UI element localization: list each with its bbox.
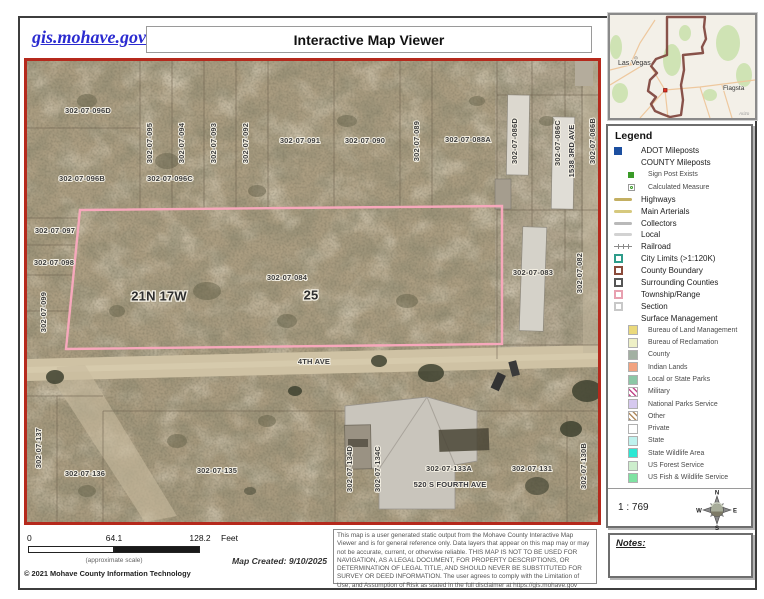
legend-swatch-wrap — [614, 266, 635, 275]
legend-swatch-wrap — [628, 424, 644, 434]
parcel-label: 302-07-097 — [35, 226, 75, 235]
legend-swatch-wrap — [628, 473, 644, 483]
dark-canopy — [439, 428, 490, 452]
parcel-label: 302-07-093 — [209, 123, 218, 163]
scalebar-segment-white — [28, 546, 114, 553]
legend-item: County Boundary — [608, 265, 751, 277]
legend-item: ADOT Mileposts — [608, 145, 751, 157]
legend-item: Local — [608, 229, 751, 241]
legend-fill-swatch — [628, 436, 638, 446]
site-link[interactable]: gis.mohave.gov — [32, 27, 146, 48]
scalebar-unit: Feet — [221, 533, 238, 543]
legend-label: City Limits (>1:120K) — [641, 254, 715, 263]
legend-swatch-wrap — [614, 210, 635, 213]
parcel-label: 302-07-092 — [241, 123, 250, 163]
legend-fill-swatch — [628, 461, 638, 471]
trailer-roof — [519, 227, 547, 332]
legend-outline-swatch — [614, 302, 623, 311]
inset-map: Las Vegas Flagsta Arizo — [608, 13, 757, 120]
page-title: Interactive Map Viewer — [294, 32, 445, 48]
legend-item: COUNTY Mileposts — [608, 157, 751, 169]
legend-item: County — [608, 349, 751, 361]
legend-line-swatch — [614, 222, 632, 225]
legend-swatch-wrap — [614, 244, 635, 249]
legend-fill-swatch — [628, 375, 638, 385]
legend-swatch-wrap — [628, 350, 644, 360]
parcel-label: 302-07-099 — [39, 292, 48, 332]
legend-label: Collectors — [641, 219, 677, 228]
scalebar-tick-mid: 64.1 — [106, 533, 123, 543]
copyright: © 2021 Mohave County Information Technol… — [24, 569, 191, 578]
legend-item: US Fish & Wildlife Service — [608, 472, 751, 484]
legend-item: Bureau of Land Management — [608, 324, 751, 336]
legend-swatch-wrap — [614, 290, 635, 299]
legend-item: Township/Range — [608, 289, 751, 301]
legend-scale-row: 1 : 769 N — [608, 489, 751, 531]
legend-label: Bureau of Land Management — [648, 327, 737, 334]
legend-label: Highways — [641, 195, 676, 204]
scalebar-tick-end: 128.2 — [189, 533, 210, 543]
legend-label: National Parks Service — [648, 401, 718, 408]
legend-item: Other — [608, 410, 751, 422]
legend-item: Indian Lands — [608, 361, 751, 373]
legend-label: Section — [641, 302, 668, 311]
legend-label: Calculated Measure — [648, 184, 709, 191]
scalebar-segment-black — [114, 546, 200, 553]
township-section-label: 21N 17W — [131, 288, 187, 303]
map-canvas: 302-07-096D302-07-096B302-07-096C302-07-… — [24, 58, 601, 525]
legend-label: State Wildlife Area — [648, 450, 704, 457]
legend-item: Highways — [608, 193, 751, 205]
legend-outline-swatch — [614, 290, 623, 299]
compass-star — [703, 496, 731, 524]
legend-item: National Parks Service — [608, 398, 751, 410]
parcel-label: 302-07-089 — [412, 121, 421, 161]
legend-title: Legend — [615, 130, 751, 142]
legend-swatch-wrap — [614, 254, 635, 263]
parcel-label: 302-07-088A — [445, 135, 491, 144]
legend-label: US Forest Service — [648, 462, 704, 469]
legend-label: Local — [641, 230, 660, 239]
parcel-label: 302-07-134C — [373, 446, 382, 492]
legend-items: ADOT MilepostsCOUNTY MilepostsSign Post … — [608, 145, 751, 484]
parcel-label: 302-07-096C — [147, 174, 193, 183]
legend: Legend ADOT MilepostsCOUNTY MilepostsSig… — [606, 124, 753, 528]
legend-label: US Fish & Wildlife Service — [648, 474, 728, 481]
legend-line-swatch — [614, 198, 632, 201]
legend-label: ADOT Mileposts — [641, 146, 699, 155]
legend-label: County Boundary — [641, 266, 703, 275]
parcel-label: 302-07-083 — [513, 268, 553, 277]
trailer-shadow — [348, 439, 368, 447]
location-marker — [664, 89, 668, 93]
legend-square-small-swatch — [628, 172, 634, 178]
legend-hatch-swatch — [628, 411, 638, 421]
legend-item: US Forest Service — [608, 459, 751, 471]
compass-rose: N S W E — [695, 489, 739, 531]
legend-rail-swatch — [614, 244, 632, 249]
legend-item: Bureau of Reclamation — [608, 336, 751, 348]
legend-item: Surrounding Counties — [608, 277, 751, 289]
legend-item: Local or State Parks — [608, 373, 751, 385]
parcel-label: 302-07-086B — [588, 118, 597, 164]
legend-item: State — [608, 435, 751, 447]
legend-swatch-wrap — [614, 278, 635, 287]
legend-item: Railroad — [608, 241, 751, 253]
legend-swatch-wrap — [614, 302, 635, 311]
parcel-label: 302-07-096B — [59, 174, 105, 183]
parcel-label: 302-07-135 — [197, 466, 237, 475]
legend-label: State — [648, 437, 664, 444]
legend-fill-swatch — [628, 473, 638, 483]
legend-swatch-wrap — [628, 375, 644, 385]
legend-item: Calculated Measure — [608, 181, 751, 193]
parcel-label: 302-07-133A — [426, 464, 472, 473]
legend-item: State Wildlife Area — [608, 447, 751, 459]
map-viewer-page: gis.mohave.gov Interactive Map Viewer — [0, 0, 764, 599]
legend-swatch-wrap — [628, 172, 644, 178]
scalebar-approx-note: (approximate scale) — [85, 557, 142, 564]
legend-outline-swatch — [614, 278, 623, 287]
parcel-label: 302-07-098 — [34, 258, 74, 267]
parcel-label: 302-07-086C — [553, 120, 562, 166]
compass-west-label: W — [696, 509, 702, 515]
legend-fill-swatch — [628, 448, 638, 458]
legend-line-swatch — [614, 233, 632, 236]
legend-swatch-wrap — [614, 198, 635, 201]
parcel-label: 302-07-134D — [345, 446, 354, 492]
parcel-label: 302-07-082 — [575, 253, 584, 293]
legend-item: Surface Management — [608, 312, 751, 324]
legend-swatch-wrap — [628, 387, 644, 397]
legend-square-swatch — [614, 147, 622, 155]
legend-label: Indian Lands — [648, 364, 687, 371]
legend-fill-swatch — [628, 325, 638, 335]
third-ave-road — [583, 61, 598, 353]
parcel-label: 4TH AVE — [298, 357, 330, 366]
parcel-label: 302-07-091 — [280, 136, 320, 145]
legend-item: Military — [608, 386, 751, 398]
parcel-label: 302-07-130B — [579, 443, 588, 489]
legend-item: Private — [608, 423, 751, 435]
shed-roof — [495, 179, 511, 209]
legend-outline-swatch — [614, 266, 623, 275]
legend-swatch-wrap — [614, 233, 635, 236]
notes-label: Notes: — [616, 538, 751, 549]
legend-swatch-wrap — [628, 338, 644, 348]
legend-fill-swatch — [628, 399, 638, 409]
legend-dot-box-swatch — [628, 184, 635, 191]
parcel-label: 302-07-086D — [510, 118, 519, 164]
legend-item: Main Arterials — [608, 205, 751, 217]
legend-swatch-wrap — [628, 461, 644, 471]
legend-label: Surface Management — [641, 314, 718, 323]
legend-outline-swatch — [614, 254, 623, 263]
legend-swatch-wrap — [628, 184, 644, 191]
parcel-label: 302-07-084 — [267, 273, 308, 282]
parcel-label: 302-07-094 — [177, 122, 186, 163]
legend-swatch-wrap — [628, 448, 644, 458]
legend-swatch-wrap — [614, 222, 635, 225]
legend-swatch-wrap — [628, 411, 644, 421]
legend-fill-swatch — [628, 424, 638, 434]
inset-city-label: Las Vegas — [618, 60, 651, 67]
legend-item: Collectors — [608, 217, 751, 229]
legend-fill-swatch — [628, 338, 638, 348]
aerial-map: 302-07-096D302-07-096B302-07-096C302-07-… — [27, 61, 598, 522]
legend-label: Other — [648, 413, 665, 420]
parcel-label: 302-07-131 — [512, 464, 552, 473]
legend-label: Local or State Parks — [648, 376, 710, 383]
legend-line-swatch — [614, 210, 632, 213]
legend-label: Main Arterials — [641, 207, 689, 216]
notes-panel: Notes: — [608, 533, 753, 578]
legend-label: Township/Range — [641, 290, 700, 299]
legend-item: City Limits (>1:120K) — [608, 253, 751, 265]
legend-fill-swatch — [628, 350, 638, 360]
legend-hatch-swatch — [628, 387, 638, 397]
compass-east-label: E — [733, 509, 737, 515]
legend-label: Sign Post Exists — [648, 171, 698, 178]
shed-roof — [575, 61, 593, 86]
parcel-label: 302-07-095 — [145, 123, 154, 163]
map-scale-ratio: 1 : 769 — [618, 502, 649, 513]
legend-item: Section — [608, 300, 751, 312]
compass-north-label: N — [715, 491, 719, 497]
legend-label: Railroad — [641, 242, 671, 251]
parcel-label: 302-07-096D — [65, 106, 111, 115]
address-label: 1538 3RD AVE — [567, 125, 576, 178]
parcel-label: 302-07-090 — [345, 136, 385, 145]
scalebar-tick-0: 0 — [27, 533, 32, 543]
legend-label: COUNTY Mileposts — [641, 158, 711, 167]
parcel-label: 302-07-137 — [34, 428, 43, 468]
legend-swatch-wrap — [628, 399, 644, 409]
legend-swatch-wrap — [614, 147, 635, 155]
parcel-label: 302-07-136 — [65, 469, 105, 478]
legend-label: Military — [648, 388, 670, 395]
inset-city-label: Flagsta — [723, 85, 745, 92]
legend-swatch-wrap — [628, 436, 644, 446]
legend-fill-swatch — [628, 362, 638, 372]
legend-swatch-wrap — [628, 325, 644, 335]
legend-label: Bureau of Reclamation — [648, 339, 718, 346]
legend-label: County — [648, 351, 670, 358]
compass-south-label: S — [715, 526, 719, 531]
legend-swatch-wrap — [628, 362, 644, 372]
legend-label: Private — [648, 425, 669, 432]
page-title-box: Interactive Map Viewer — [146, 26, 592, 53]
disclaimer: This map is a user generated static outp… — [333, 529, 597, 584]
address-label: 520 S FOURTH AVE — [414, 480, 487, 489]
legend-item: Sign Post Exists — [608, 169, 751, 181]
inset-attribution: Arizo — [738, 111, 750, 116]
map-created-date: Map Created: 9/10/2025 — [232, 556, 327, 566]
inset-map-svg: Las Vegas Flagsta Arizo — [610, 15, 755, 118]
legend-label: Surrounding Counties — [641, 278, 718, 287]
township-section-label: 25 — [304, 287, 319, 302]
